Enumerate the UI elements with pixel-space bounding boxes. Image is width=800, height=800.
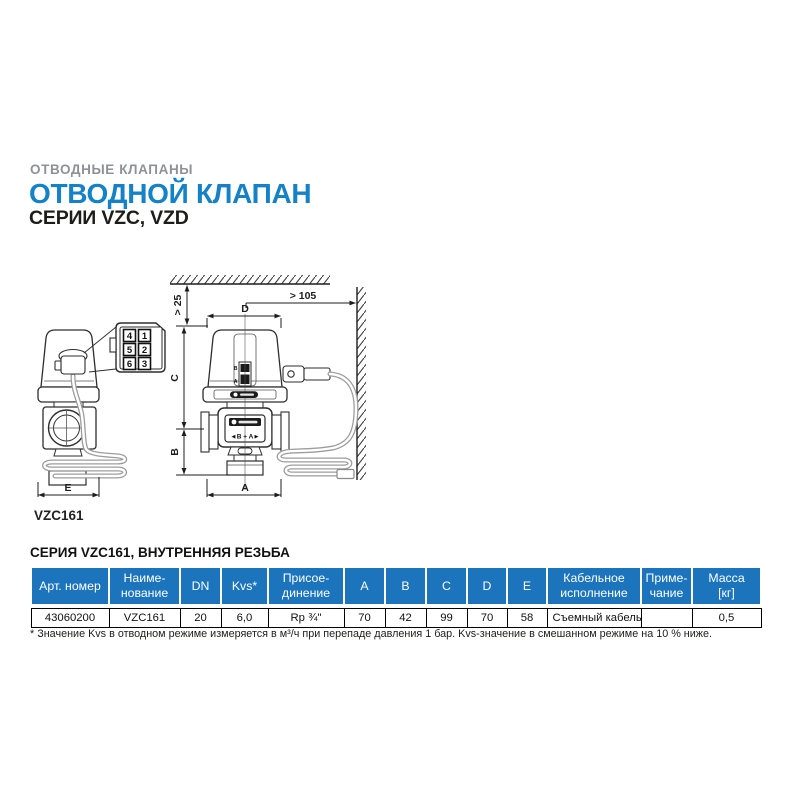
wall-hatch — [357, 287, 366, 480]
col-art-number: Арт. номер — [31, 567, 109, 605]
cable-end-connector — [337, 470, 354, 479]
col-mass: Масса [кг] — [692, 567, 761, 605]
spec-table: Арт. номер Наиме- нование DN Kvs* Присое… — [30, 566, 762, 628]
pin-number-5: 5 — [127, 345, 133, 356]
catalog-page: ОТВОДНЫЕ КЛАПАНЫ ОТВОДНОЙ КЛАПАН СЕРИИ V… — [0, 0, 800, 800]
col-name: Наиме- нование — [109, 567, 180, 605]
col-c: C — [426, 567, 467, 605]
cell-e: 58 — [507, 609, 547, 628]
cell-mass: 0,5 — [692, 609, 761, 628]
pin-number-2: 2 — [142, 345, 147, 356]
section-title: СЕРИЯ VZC161, ВНУТРЕННЯЯ РЕЗЬБА — [30, 545, 290, 560]
dim-d-label: D — [241, 303, 249, 315]
brand-logo-valve — [229, 418, 261, 426]
pin-number-3: 3 — [142, 359, 147, 370]
dim-e-label: E — [64, 482, 71, 494]
col-cable: Кабельное исполнение — [547, 567, 641, 605]
cell-connection: Rp ¾" — [268, 609, 344, 628]
indicator-letter-a: A — [234, 379, 238, 385]
col-kvs: Kvs* — [221, 567, 268, 605]
page-title: ОТВОДНОЙ КЛАПАН — [29, 178, 311, 210]
cable-connector-front — [283, 366, 330, 382]
pin-number-1: 1 — [142, 331, 148, 342]
spec-table-header-row: Арт. номер Наиме- нование DN Kvs* Присое… — [31, 567, 761, 605]
col-e: E — [507, 567, 547, 605]
cell-c: 99 — [426, 609, 467, 628]
cell-d: 70 — [467, 609, 507, 628]
kvs-footnote: * Значение Kvs в отводном режиме измеряе… — [30, 628, 730, 640]
dim-wall-clearance-label: > 105 — [290, 290, 317, 302]
col-d: D — [467, 567, 507, 605]
indicator-letter-b: B — [234, 366, 238, 372]
cell-name: VZC161 — [109, 609, 180, 628]
front-cable — [279, 374, 356, 474]
dim-c-label: C — [169, 374, 181, 382]
col-dn: DN — [180, 567, 221, 605]
col-connection: Присое- динение — [268, 567, 344, 605]
cell-note — [641, 609, 692, 628]
col-b: B — [385, 567, 426, 605]
technical-drawing: 4 1 5 2 6 3 — [0, 250, 400, 540]
col-a: A — [344, 567, 385, 605]
col-note: Приме- чание — [641, 567, 692, 605]
page-subtitle: СЕРИИ VZC, VZD — [29, 207, 189, 230]
pin-number-6: 6 — [127, 359, 132, 370]
cell-art-number: 43060200 — [31, 609, 109, 628]
spec-table-data-row: 43060200 VZC161 20 6,0 Rp ¾" 70 42 99 70… — [31, 609, 761, 628]
cell-dn: 20 — [180, 609, 221, 628]
pin-number-4: 4 — [127, 331, 133, 342]
cable-connector-side — [55, 350, 87, 375]
dim-top-clearance-label: > 25 — [172, 294, 184, 315]
cell-cable: Съемный кабель — [547, 609, 641, 628]
valve-body-marking: ◄B + A► — [230, 434, 259, 441]
dim-a-label: A — [241, 482, 249, 494]
cell-b: 42 — [385, 609, 426, 628]
model-label: VZC161 — [34, 508, 84, 523]
dim-b-label: B — [169, 448, 181, 456]
ceiling-hatch — [170, 275, 330, 284]
page-kicker: ОТВОДНЫЕ КЛАПАНЫ — [30, 162, 193, 177]
connector-pinout: 4 1 5 2 6 3 — [110, 323, 165, 372]
cell-kvs: 6,0 — [221, 609, 268, 628]
cell-a: 70 — [344, 609, 385, 628]
brand-logo-actuator — [230, 391, 258, 398]
